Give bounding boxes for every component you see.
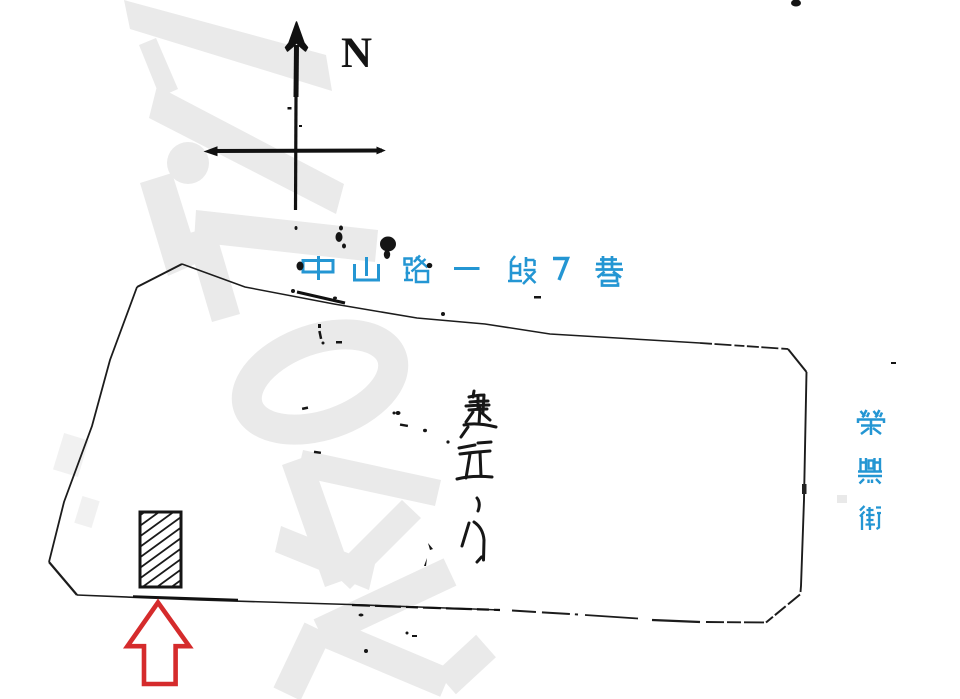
- svg-text:N: N: [341, 30, 372, 77]
